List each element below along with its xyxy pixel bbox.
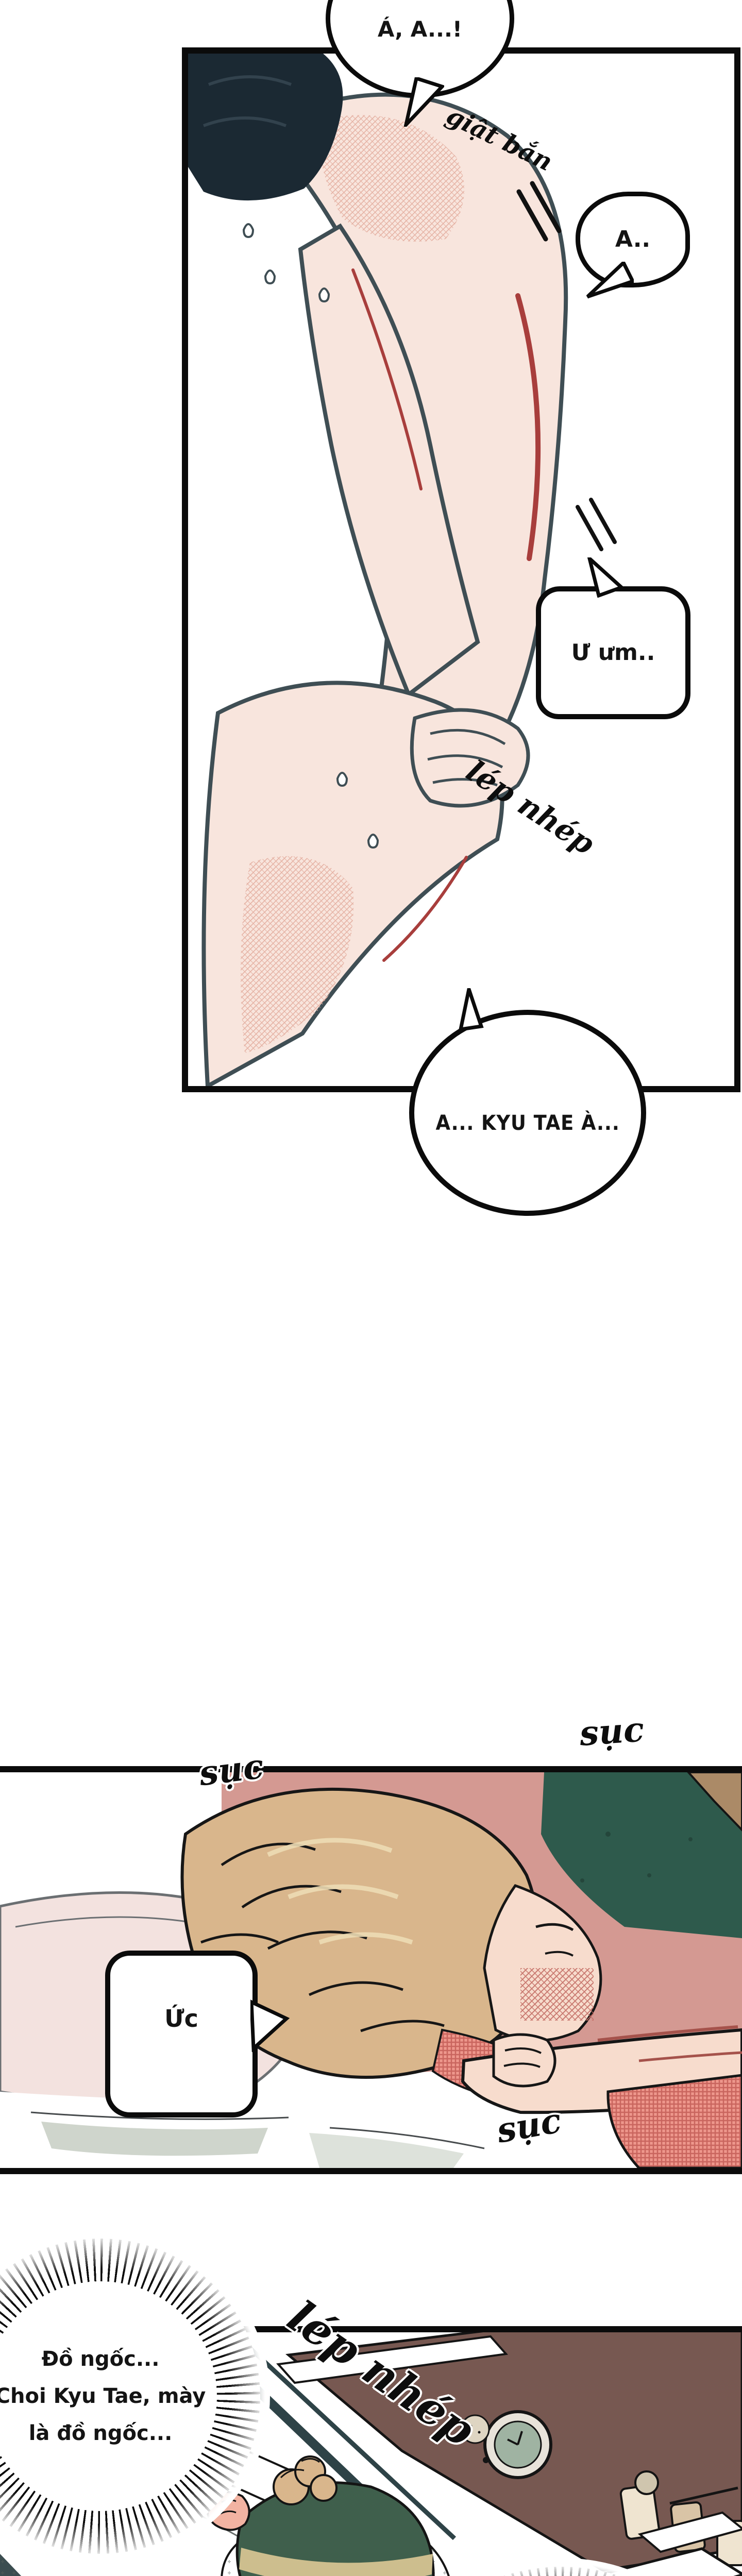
speech-bubble-u-um: Ư ưm.. <box>536 586 690 719</box>
speech-bubble-uc-text: Ức <box>164 2003 198 2035</box>
speech-bubble-uc-tail <box>250 1997 295 2053</box>
speech-bubble-aa-text: Á, A...! <box>330 15 510 44</box>
speech-bubble-kyu-tae-text: A... KYU TAE À... <box>435 1109 619 1137</box>
alarm-clock <box>483 2412 551 2478</box>
burst-left-line1: Đồ ngốc... <box>42 2341 160 2378</box>
burst-left-line3: là đồ ngốc... <box>29 2415 173 2452</box>
speech-bubble-u-um-text: Ư ưm.. <box>571 637 655 668</box>
speech-bubble-kyu-tae: A... KYU TAE À... <box>409 1010 646 1216</box>
burst-bubble-left: Đồ ngốc... Choi Kyu Tae, mày là đồ ngốc.… <box>0 2239 260 2554</box>
speech-bubble-a-tail <box>586 262 634 299</box>
sfx-suc-panel2-topleft: sục <box>197 1746 266 1794</box>
burst-left-line2: Choi Kyu Tae, mày <box>0 2378 206 2415</box>
speech-bubble-kyu-tae-tail <box>458 988 491 1031</box>
speech-bubble-a-text: A.. <box>615 224 650 255</box>
speech-bubble-uc: Ức <box>105 1951 258 2117</box>
comic-page: Á, A...! giật bắn A.. Ư ưm.. lép nhép A.… <box>0 0 742 2576</box>
speech-bubble-u-um-tail <box>581 557 631 598</box>
speech-bubble-aa-tail <box>401 77 444 127</box>
sfx-suc-panel2-topright: sục <box>578 1709 645 1754</box>
burst-bubble-right: Đồ ngốc, đồ cầm thú, đồ chậm chạp. <box>396 2567 728 2576</box>
